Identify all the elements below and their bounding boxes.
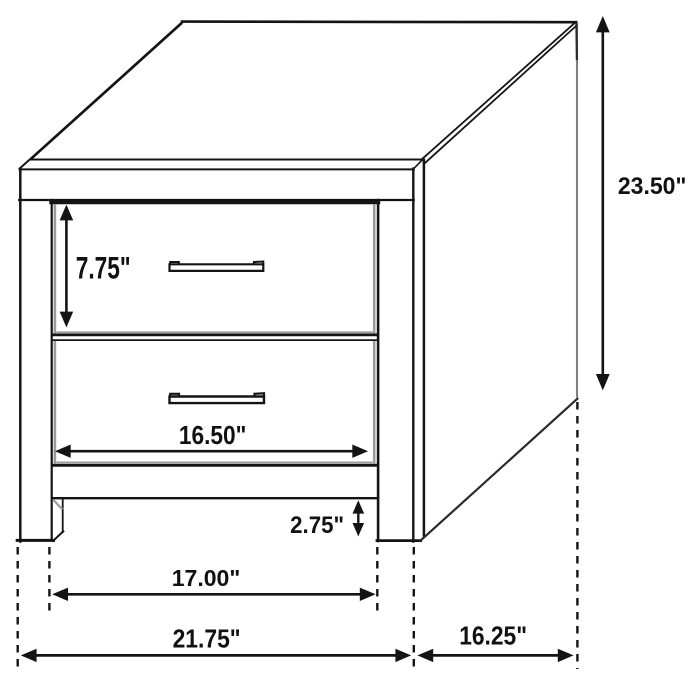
- svg-text:2.75": 2.75": [290, 511, 344, 538]
- svg-text:23.50": 23.50": [618, 173, 687, 200]
- svg-text:17.00": 17.00": [172, 565, 240, 591]
- svg-text:21.75": 21.75": [173, 625, 241, 654]
- svg-text:7.75": 7.75": [76, 250, 131, 286]
- svg-text:16.50": 16.50": [179, 422, 247, 451]
- svg-text:16.25": 16.25": [459, 623, 527, 652]
